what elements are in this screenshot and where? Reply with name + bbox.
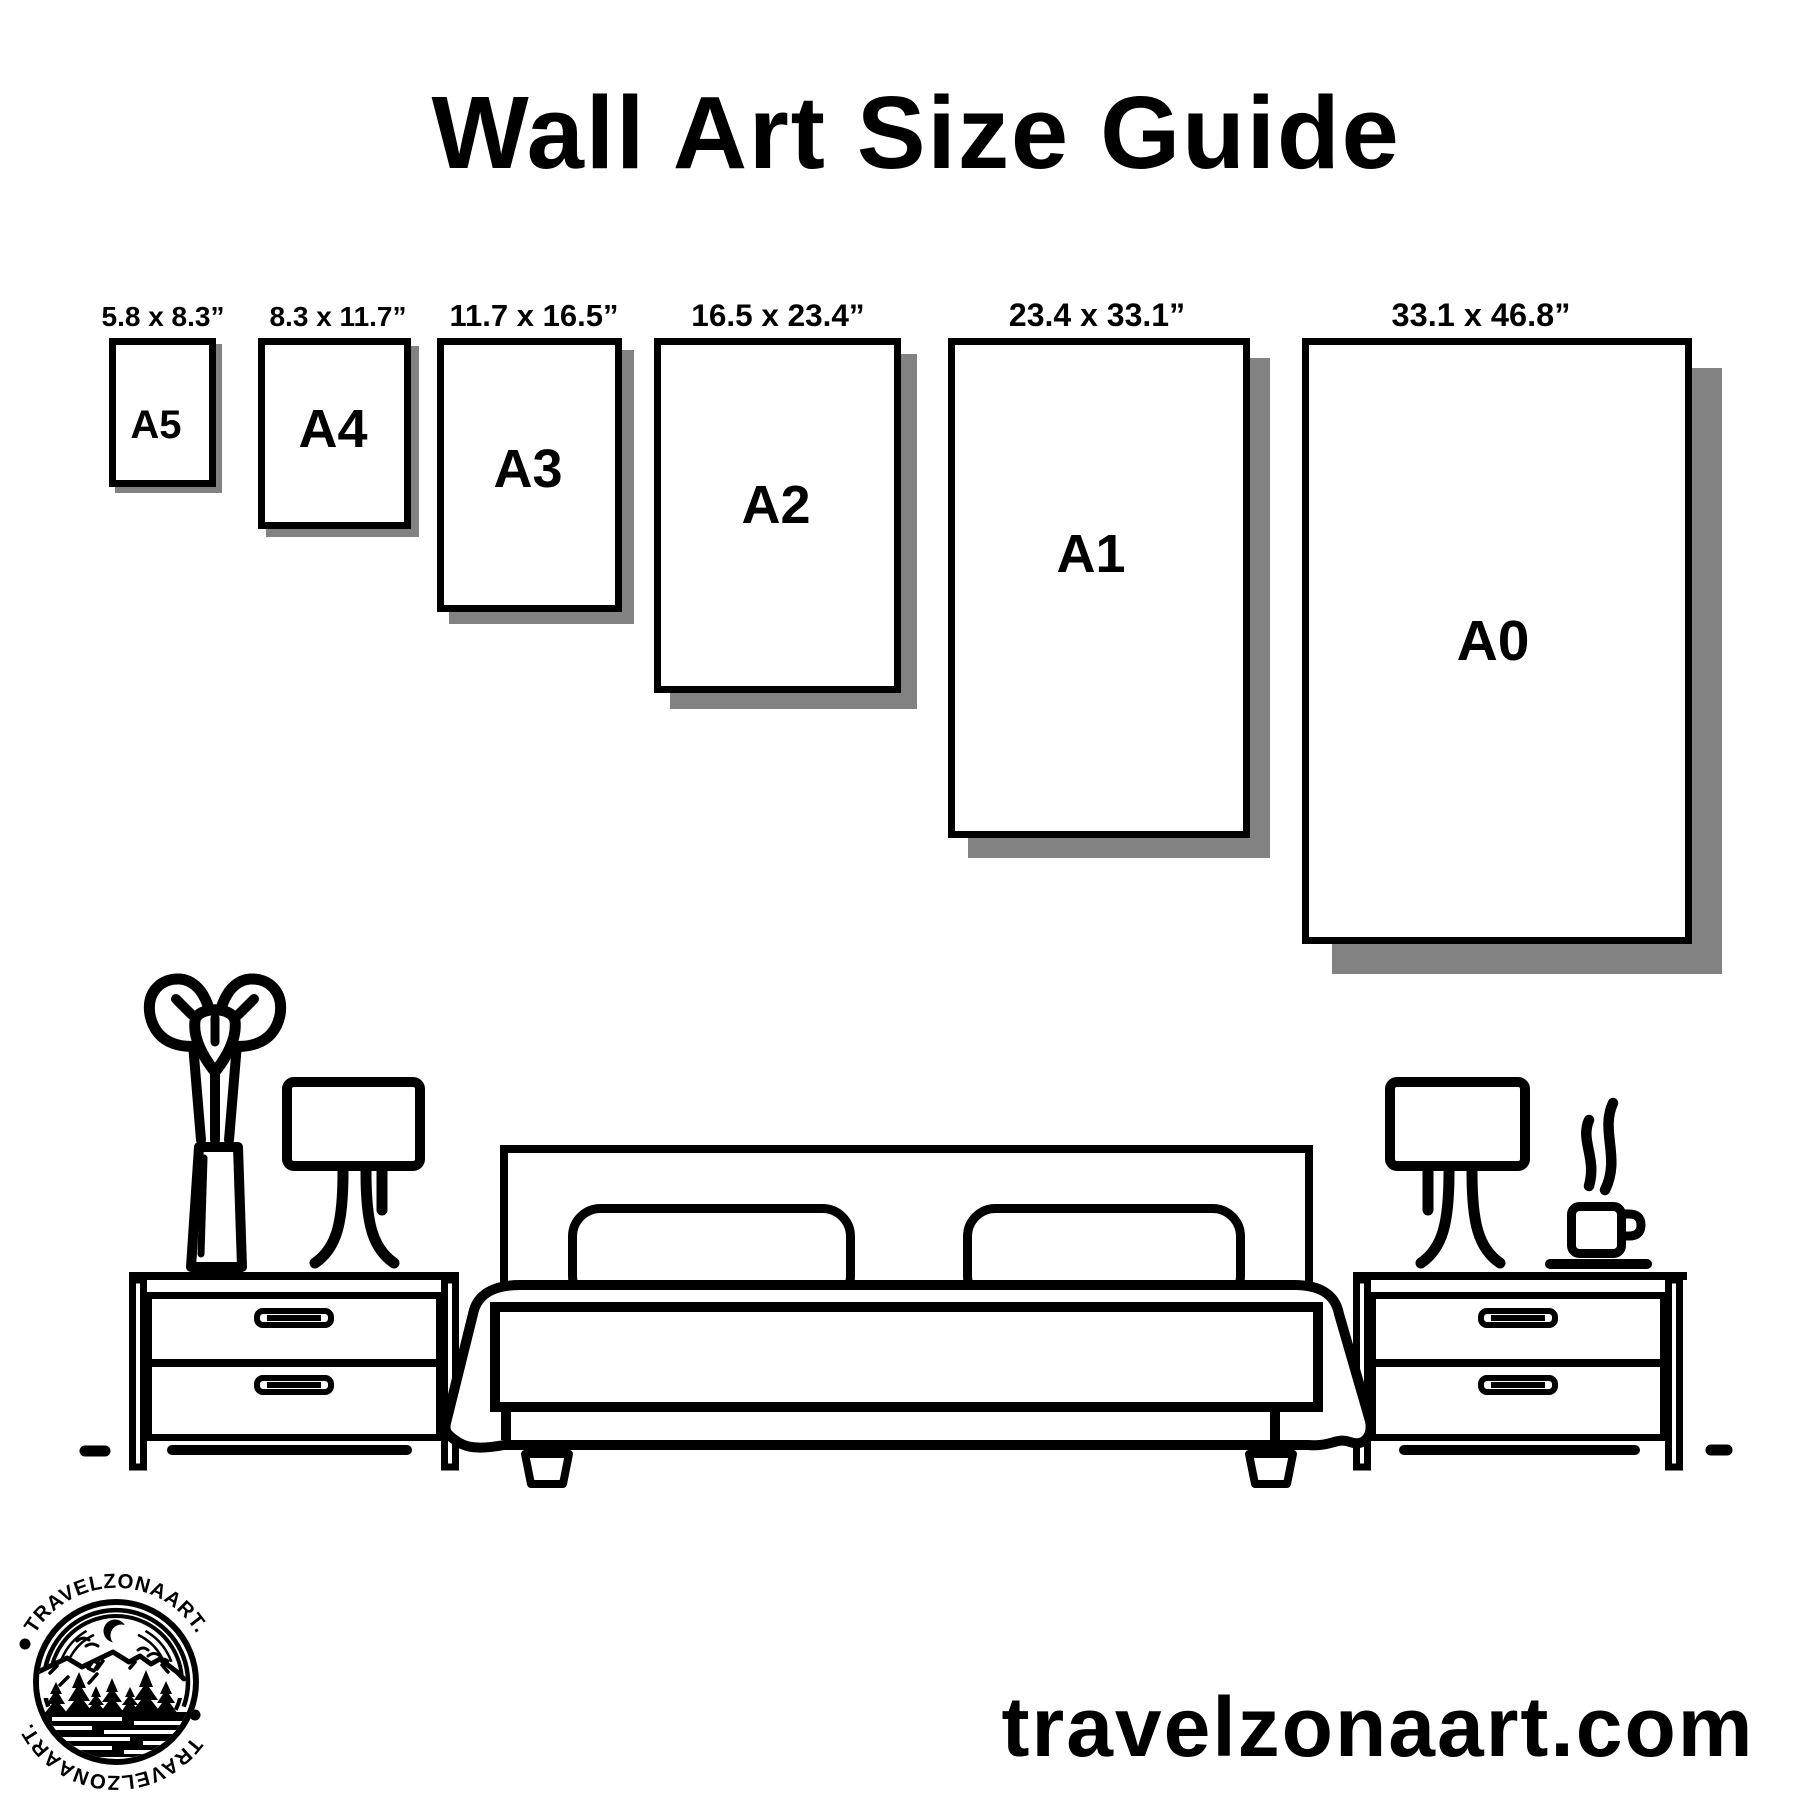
svg-text:11.7 x 16.5”: 11.7 x 16.5” xyxy=(450,298,619,333)
svg-text:8.3 x 11.7”: 8.3 x 11.7” xyxy=(269,301,406,332)
svg-text:23.4 x 33.1”: 23.4 x 33.1” xyxy=(1009,297,1185,333)
svg-text:A5: A5 xyxy=(130,403,181,447)
svg-text:A0: A0 xyxy=(1457,609,1530,673)
svg-text:A1: A1 xyxy=(1056,524,1125,584)
svg-text:16.5 x 23.4”: 16.5 x 23.4” xyxy=(691,297,864,333)
svg-text:5.8 x 8.3”: 5.8 x 8.3” xyxy=(102,301,225,332)
svg-text:A3: A3 xyxy=(493,439,562,499)
svg-text:33.1 x 46.8”: 33.1 x 46.8” xyxy=(1392,297,1571,333)
svg-text:A2: A2 xyxy=(741,475,810,535)
svg-text:A4: A4 xyxy=(298,399,367,459)
svg-text:Wall Art Size Guide: Wall Art Size Guide xyxy=(432,75,1401,190)
svg-text:travelzonaart.com: travelzonaart.com xyxy=(1002,1680,1755,1774)
